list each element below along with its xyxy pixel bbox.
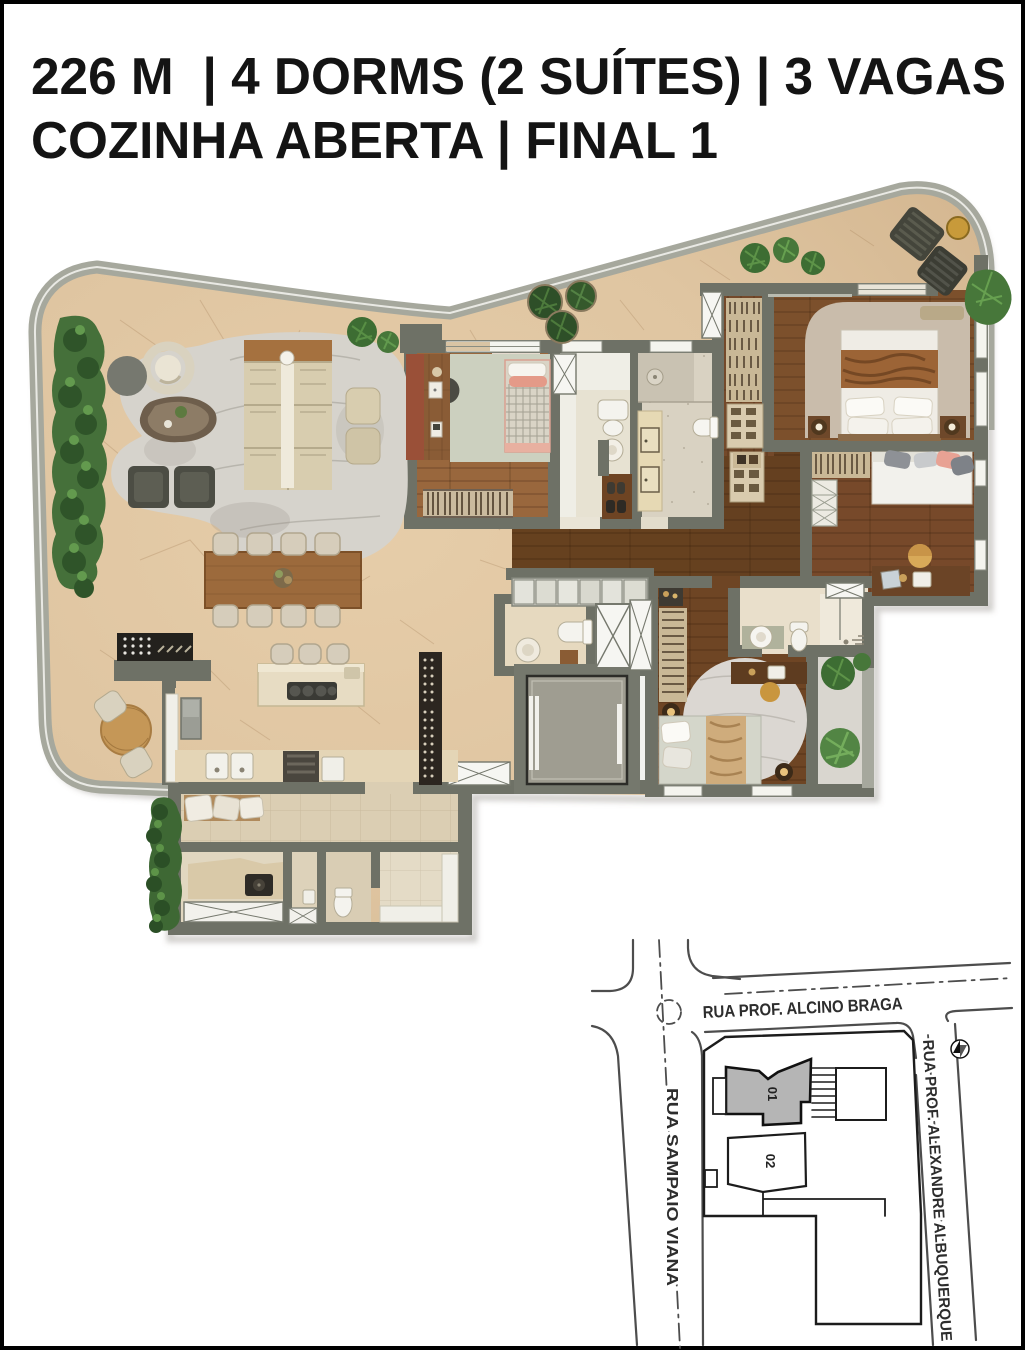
svg-text:COZINHA ABERTA | FINAL 1: COZINHA ABERTA | FINAL 1	[31, 112, 718, 170]
svg-text:01: 01	[765, 1087, 780, 1101]
svg-text:02: 02	[763, 1154, 778, 1168]
svg-text:RUA SAMPAIO VIANA: RUA SAMPAIO VIANA	[663, 1088, 680, 1287]
svg-text:226 M | 4 DORMS (2 SUÍTES) |: 226 M | 4 DORMS (2 SUÍTES) | 3 VAGAS	[31, 48, 1006, 106]
